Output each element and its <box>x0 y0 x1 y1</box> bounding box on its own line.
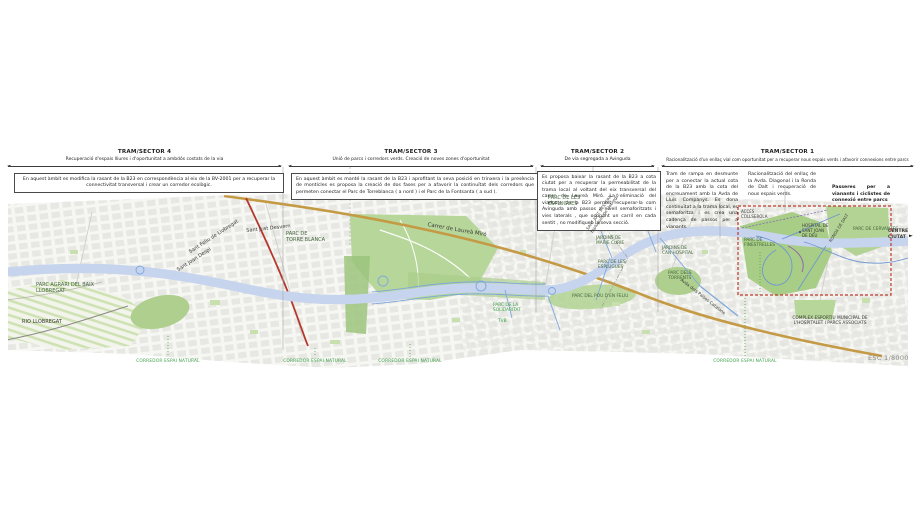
label-finestrelles: PARC DE FINESTRELLES <box>744 238 775 249</box>
city-map <box>0 0 920 514</box>
label-acces-collserola: ACCÉS COLLSEROLA <box>741 209 767 219</box>
label-rio-llobregat: RIO LLOBREGAT <box>22 319 62 325</box>
corridor-label-3: CORREDOR ESPAI NATURAL <box>368 359 452 364</box>
label-marie-curie: JARDINS DE MARIE CURIE <box>596 236 624 247</box>
label-complex-esportiu: COMPLEX ESPORTIU MUNICIPAL DE L'HOSPITAL… <box>770 316 890 327</box>
label-esplugues-mid: PARC DE LES ESPLUGUES <box>598 260 626 271</box>
label-tvb: TVB <box>498 319 507 324</box>
label-solidaritat: PARC DE LA SOLIDARITAT <box>493 303 521 314</box>
label-esplugues-top: PARC DE LES ESPLUGUES <box>548 195 580 208</box>
sector2-subtitle: De via segregada a Avinguda <box>541 157 654 162</box>
label-torre-blanca: PARC DE TORRE BLANCA <box>286 231 325 244</box>
sector1-note-enllac: Racionalització del enllaç de la Avda. D… <box>748 172 816 198</box>
sector2-title: TRAM/SECTOR 2 <box>541 149 654 155</box>
sector4-description-box: En aquest àmbit es modifica la rasant de… <box>14 173 284 193</box>
label-can-hospital: JARDINS DE CAN HOSPITAL <box>662 246 693 257</box>
corridor-label-2: CORREDOR ESPAI NATURAL <box>273 359 357 364</box>
sector4-title: TRAM/SECTOR 4 <box>8 149 281 155</box>
sector1-subtitle: Racionalització d'un enllaç vial com opo… <box>662 157 913 162</box>
sector4-subtitle: Recuperació d'espais lliures i d'oportun… <box>8 157 281 162</box>
centre-ciutat-arrow-icon: ► <box>909 233 913 239</box>
planning-poster: TRAM/SECTOR 4 Recuperació d'espais lliur… <box>0 0 920 514</box>
sector1-title: TRAM/SECTOR 1 <box>662 149 913 155</box>
corridor-label-1: CORREDOR ESPAI NATURAL <box>126 359 210 364</box>
sector4-extent-rule <box>8 166 281 167</box>
sector3-subtitle: Unió de parcs i corredors verds. Creació… <box>289 157 533 162</box>
sector3-description-box: En aquest àmbit es manté la rasant de la… <box>291 173 539 200</box>
sector1-note-passeres: Passeres per a vianants i ciclistes de c… <box>832 185 890 205</box>
label-pou-felix: PARC DEL POU D'EN FELIU <box>572 294 628 299</box>
hospital-marker <box>799 231 801 233</box>
label-parc-agrari: PARC AGRARI DEL BAIX LLOBREGAT <box>36 282 94 295</box>
sector2-extent-rule <box>541 166 654 167</box>
sector1-note-ramp: Tram de rampa en desmunte per a conectar… <box>666 172 738 231</box>
sector3-title: TRAM/SECTOR 3 <box>289 149 533 155</box>
corridor-label-4: CORREDOR ESPAI NATURAL <box>703 359 787 364</box>
sector3-extent-rule <box>289 166 533 167</box>
label-centre-ciutat: CENTRE CIUTAT <box>888 229 908 240</box>
sector1-extent-rule <box>662 166 913 167</box>
label-hospital: HOSPITAL DE SANT JOAN DE DÉU <box>802 223 828 238</box>
scale-label: ESC 1/8000 <box>868 354 909 362</box>
